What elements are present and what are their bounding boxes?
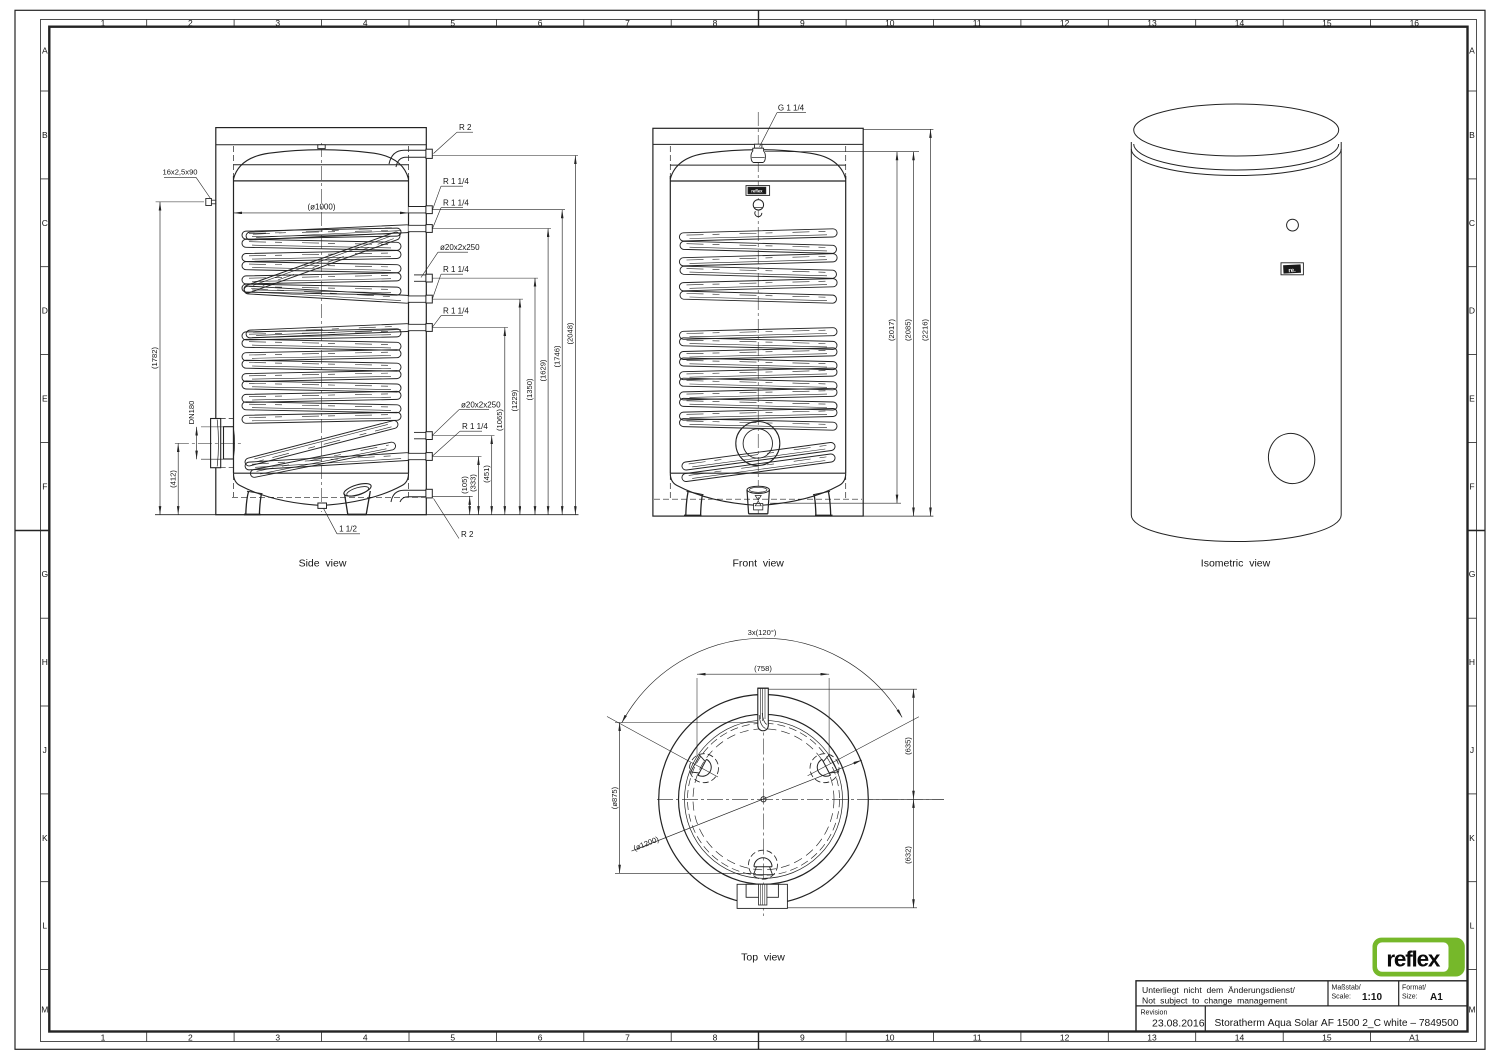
- svg-text:15: 15: [1322, 1033, 1332, 1043]
- svg-text:Format/: Format/: [1402, 985, 1426, 992]
- svg-text:(2048): (2048): [566, 322, 575, 344]
- svg-text:(1229): (1229): [510, 389, 519, 411]
- svg-text:15: 15: [1322, 18, 1332, 28]
- svg-text:Revision: Revision: [1141, 1009, 1168, 1016]
- svg-text:A: A: [42, 46, 48, 56]
- svg-text:7: 7: [625, 18, 630, 28]
- svg-text:Front view: Front view: [733, 558, 785, 570]
- svg-text:re.: re.: [1288, 268, 1296, 274]
- svg-text:Top view: Top view: [741, 952, 785, 964]
- svg-text:10: 10: [885, 1033, 895, 1043]
- svg-text:(2216): (2216): [921, 319, 930, 341]
- svg-text:F: F: [1469, 481, 1474, 491]
- svg-text:Not subject to change mana: Not subject to change management: [1142, 996, 1288, 1006]
- svg-text:R 2: R 2: [461, 530, 474, 539]
- svg-text:R 1 1/4: R 1 1/4: [443, 307, 469, 316]
- svg-text:3x(120°): 3x(120°): [748, 628, 777, 637]
- svg-text:(2017): (2017): [887, 319, 896, 341]
- svg-text:G: G: [1469, 569, 1476, 579]
- svg-text:R 1 1/4: R 1 1/4: [443, 199, 469, 208]
- svg-text:E: E: [42, 394, 48, 404]
- svg-text:(ø875): (ø875): [610, 786, 619, 809]
- svg-text:Unterliegt nicht dem Änderu: Unterliegt nicht dem Änderungsdienst/: [1142, 985, 1295, 995]
- svg-text:6: 6: [538, 18, 543, 28]
- svg-text:1:10: 1:10: [1362, 992, 1382, 1003]
- svg-text:8: 8: [713, 18, 718, 28]
- svg-text:1 1/2: 1 1/2: [339, 525, 357, 534]
- svg-text:D: D: [1469, 306, 1475, 316]
- svg-text:(758): (758): [754, 664, 772, 673]
- svg-text:reflex: reflex: [751, 189, 763, 194]
- svg-text:4: 4: [363, 18, 368, 28]
- svg-text:ø20x2x250: ø20x2x250: [440, 243, 480, 252]
- svg-text:(1782): (1782): [150, 347, 159, 369]
- svg-text:R 1 1/4: R 1 1/4: [462, 422, 488, 431]
- svg-text:C: C: [1469, 218, 1475, 228]
- svg-text:R 1 1/4: R 1 1/4: [443, 177, 469, 186]
- svg-text:(1350): (1350): [525, 378, 534, 400]
- svg-text:16: 16: [1410, 18, 1420, 28]
- svg-text:10: 10: [885, 18, 895, 28]
- svg-text:14: 14: [1235, 1033, 1245, 1043]
- svg-text:H: H: [42, 657, 48, 667]
- svg-text:reflex: reflex: [1386, 947, 1441, 972]
- svg-text:J: J: [1470, 745, 1474, 755]
- svg-text:Maßstab/: Maßstab/: [1332, 985, 1361, 992]
- svg-text:ø20x2x250: ø20x2x250: [461, 401, 501, 410]
- svg-text:M: M: [41, 1005, 48, 1015]
- svg-text:H: H: [1469, 657, 1475, 667]
- svg-text:3: 3: [275, 1033, 280, 1043]
- svg-text:13: 13: [1147, 1033, 1157, 1043]
- svg-text:(333): (333): [469, 474, 478, 492]
- svg-text:B: B: [1469, 130, 1475, 140]
- svg-text:DN180: DN180: [187, 401, 196, 425]
- svg-text:C: C: [42, 218, 48, 228]
- svg-text:2: 2: [188, 18, 193, 28]
- svg-text:(451): (451): [482, 465, 491, 483]
- svg-text:(412): (412): [168, 470, 177, 488]
- svg-text:1: 1: [101, 18, 106, 28]
- svg-text:B: B: [42, 130, 48, 140]
- svg-text:Isometric view: Isometric view: [1201, 558, 1271, 570]
- svg-text:12: 12: [1060, 1033, 1070, 1043]
- svg-text:Size:: Size:: [1402, 994, 1418, 1001]
- svg-text:23.08.2016: 23.08.2016: [1152, 1017, 1205, 1029]
- svg-text:(1065): (1065): [495, 409, 504, 431]
- svg-text:Storatherm Aqua Solar AF 1500: Storatherm Aqua Solar AF 1500 2_C white …: [1214, 1018, 1458, 1029]
- svg-text:14: 14: [1235, 18, 1245, 28]
- svg-text:A: A: [1469, 46, 1475, 56]
- svg-text:2: 2: [188, 1033, 193, 1043]
- svg-text:R 1 1/4: R 1 1/4: [443, 265, 469, 274]
- svg-text:12: 12: [1060, 18, 1070, 28]
- svg-text:(2085): (2085): [904, 319, 913, 341]
- svg-text:5: 5: [450, 1033, 455, 1043]
- svg-text:7: 7: [625, 1033, 630, 1043]
- svg-text:E: E: [1469, 394, 1475, 404]
- svg-text:5: 5: [450, 18, 455, 28]
- svg-text:K: K: [1469, 833, 1475, 843]
- svg-text:3: 3: [275, 18, 280, 28]
- svg-text:(635): (635): [904, 737, 913, 755]
- svg-text:(1746): (1746): [552, 345, 561, 367]
- svg-text:M: M: [1468, 1005, 1475, 1015]
- svg-text:G: G: [41, 569, 48, 579]
- svg-text:9: 9: [800, 1033, 805, 1043]
- svg-text:F: F: [42, 481, 47, 491]
- svg-text:L: L: [42, 921, 47, 931]
- svg-text:8: 8: [713, 1033, 718, 1043]
- svg-text:A1: A1: [1430, 992, 1443, 1003]
- svg-text:(ø1000): (ø1000): [307, 203, 335, 212]
- svg-text:13: 13: [1147, 18, 1157, 28]
- svg-text:(632): (632): [904, 846, 913, 864]
- svg-text:6: 6: [538, 1033, 543, 1043]
- svg-text:G 1 1/4: G 1 1/4: [778, 104, 805, 113]
- svg-text:L: L: [1470, 921, 1475, 931]
- svg-text:(1629): (1629): [538, 359, 547, 381]
- svg-text:K: K: [42, 833, 48, 843]
- svg-text:Scale:: Scale:: [1332, 994, 1352, 1001]
- svg-text:1: 1: [101, 1033, 106, 1043]
- svg-text:4: 4: [363, 1033, 368, 1043]
- svg-text:J: J: [43, 745, 47, 755]
- svg-text:9: 9: [800, 18, 805, 28]
- svg-text:11: 11: [973, 1033, 982, 1043]
- svg-text:16x2,5x90: 16x2,5x90: [162, 168, 197, 177]
- svg-text:D: D: [42, 306, 48, 316]
- svg-text:11: 11: [973, 18, 982, 28]
- svg-text:R 2: R 2: [459, 123, 472, 132]
- svg-text:(105): (105): [460, 476, 469, 494]
- svg-text:Side view: Side view: [299, 558, 347, 570]
- svg-text:A1: A1: [1409, 1033, 1420, 1043]
